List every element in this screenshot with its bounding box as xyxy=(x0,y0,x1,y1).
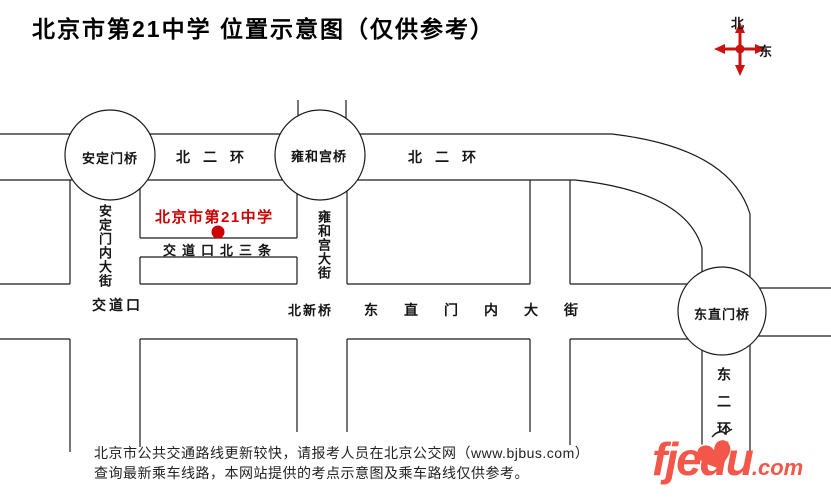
map-title: 北京市第21中学 位置示意图（仅供参考） xyxy=(32,10,495,44)
yonghegong-bridge-label: 雍和宫桥 xyxy=(291,146,347,165)
map-roads-svg xyxy=(0,0,831,500)
beixinqiao-label: 北新桥 xyxy=(288,300,333,319)
school-name-label: 北京市第21中学 xyxy=(155,206,274,227)
andingmennei-street-label: 安定门内大街 xyxy=(95,204,114,288)
compass-east-label: 东 xyxy=(759,41,772,60)
ring-road-label-east: 北二环 xyxy=(408,147,489,167)
vertical-street-edges-lower xyxy=(70,339,570,452)
yonghegong-street-label: 雍和宫大街 xyxy=(314,210,333,280)
map-canvas: 北京市第21中学 位置示意图（仅供参考） 北 东 北二环 北二环 安定门桥 雍和… xyxy=(0,0,831,500)
ring-road-label-west: 北二环 xyxy=(176,147,257,167)
dongzhimen-bridge-label: 东直门桥 xyxy=(694,304,750,323)
jiaodaokou-beisantiao-label: 交道口北三条 xyxy=(163,240,277,259)
fjedu-logo-text: fjedu xyxy=(652,433,752,485)
fjedu-logo-suffix: .com xyxy=(752,455,803,480)
school-location-dot-icon xyxy=(212,226,225,239)
footer-note-line1: 北京市公共交通路线更新较快，请报考人员在北京公交网（www.bjbus.com） xyxy=(94,443,589,463)
andingmen-bridge-label: 安定门桥 xyxy=(82,148,138,167)
compass-north-label: 北 xyxy=(731,13,744,32)
dongzhimennei-street-label: 东直门内大街 xyxy=(364,300,604,320)
footer-note-line2: 查询最新乘车线路，本网站提供的考点示意图及乘车路线仅供参考。 xyxy=(94,463,529,483)
fjedu-logo: fjedu.com xyxy=(652,436,803,482)
jiaodaokou-label: 交道口 xyxy=(92,295,143,315)
